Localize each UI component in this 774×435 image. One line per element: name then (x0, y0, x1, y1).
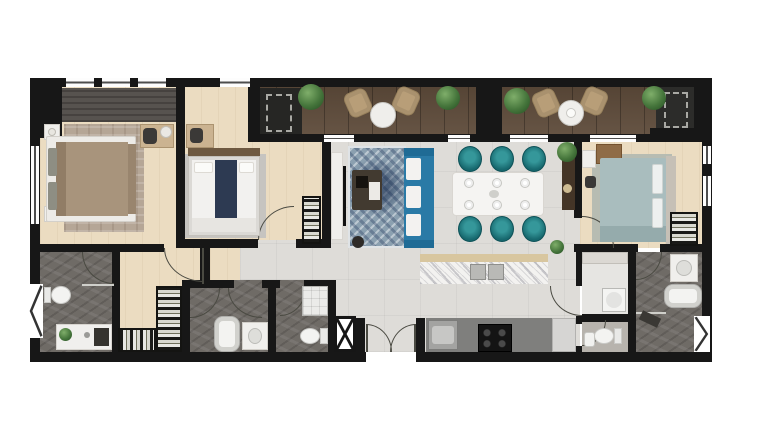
wall-bath1-top (40, 244, 120, 252)
window (510, 135, 548, 142)
island-counter-edge (420, 254, 548, 262)
closet-band (56, 88, 176, 122)
window (703, 176, 711, 206)
pillow (194, 162, 213, 173)
wall-laundry-east (628, 244, 636, 352)
dining-chair (490, 146, 514, 172)
wall-bottom-left (30, 352, 366, 362)
sofa-cushion (406, 158, 421, 180)
window (324, 135, 354, 142)
bathtub (664, 284, 702, 308)
ac-unit-left-coil (266, 94, 292, 132)
tv-console (331, 152, 343, 240)
sink (248, 328, 262, 344)
lamp (160, 126, 172, 138)
plant (642, 86, 666, 110)
wall-entry-post-left (356, 318, 365, 352)
washer-drum (606, 292, 622, 308)
dining-chair (490, 216, 514, 242)
sofa-arm (404, 240, 434, 248)
wardrobe-unit (670, 212, 698, 246)
plate (520, 178, 530, 188)
wall-closet-top (120, 244, 164, 252)
window (220, 78, 250, 87)
wardrobe-unit (156, 286, 182, 352)
sofa-cushion (406, 214, 421, 236)
bed-left-fold (56, 142, 66, 216)
console-decor (563, 184, 572, 193)
desk-chair (143, 128, 157, 144)
window (448, 135, 470, 142)
wall-bath2-west (182, 280, 190, 352)
shaft (334, 316, 356, 352)
toilet-bowl (51, 286, 71, 304)
vanity-tray (94, 328, 109, 346)
pillow (652, 198, 663, 228)
plate (520, 200, 530, 210)
pillow (48, 148, 57, 176)
wardrobe-unit (118, 328, 156, 352)
wall-bed2-living (322, 136, 331, 248)
door-leaf (202, 248, 204, 284)
wall-bed1-bed2 (176, 86, 185, 239)
centerpiece (489, 190, 499, 198)
ac-unit-right-coil (664, 92, 688, 128)
bed-left-duvet (56, 142, 128, 216)
lamp (48, 128, 56, 136)
pillow (239, 162, 254, 173)
sofa-cushion (406, 186, 421, 208)
plate (492, 178, 502, 188)
faucet (84, 332, 90, 338)
bed-left-runner (128, 144, 136, 214)
patio-table (370, 102, 396, 128)
toilet-tank (614, 328, 622, 344)
plant (436, 86, 460, 110)
dining-chair (522, 216, 546, 242)
window (590, 135, 636, 142)
plant (550, 240, 564, 254)
wall-bath2-bath3 (268, 280, 276, 352)
coffee-table-decor (356, 176, 368, 188)
shower-glass (82, 284, 114, 286)
side-table (352, 236, 364, 248)
island-sink (488, 264, 504, 280)
sink (676, 260, 692, 276)
dining-chair (458, 146, 482, 172)
door-leaf (366, 324, 368, 352)
shelf-unit (302, 196, 321, 244)
desk-chair (190, 128, 203, 143)
laundry-shelf (582, 252, 628, 264)
dining-chair (458, 216, 482, 242)
wall-balcony-left-end (248, 86, 260, 138)
cooktop (478, 324, 512, 352)
sofa-arm (404, 148, 434, 156)
toilet-bowl (594, 328, 614, 344)
window (102, 78, 130, 87)
window (138, 78, 166, 87)
plant (504, 88, 530, 114)
plate (464, 200, 474, 210)
pillow (652, 164, 663, 194)
bathtub (214, 316, 240, 352)
wall-laundry-west-c (576, 346, 582, 352)
wall-between-balconies (476, 78, 502, 142)
window (66, 78, 94, 87)
plate (492, 200, 502, 210)
dining-chair (522, 146, 546, 172)
plant (298, 84, 324, 110)
wall-entry-post-right (416, 318, 425, 352)
stool (585, 176, 596, 188)
plant (59, 328, 72, 341)
toilet-tank (320, 328, 328, 344)
kitchen-sink-basin (432, 326, 454, 344)
nightstand (582, 150, 596, 168)
shower-pan (302, 286, 328, 316)
tv (343, 166, 346, 226)
wall-bath-top-a (182, 280, 234, 288)
bay-window-left (28, 284, 43, 338)
pillow (48, 182, 57, 210)
fridge (552, 318, 576, 352)
patio-table-decor (566, 108, 576, 118)
island-sink (470, 264, 486, 280)
sink (584, 332, 595, 347)
toilet-tank (44, 287, 51, 303)
floor-plan (0, 0, 774, 435)
bed-right-fold (600, 226, 666, 242)
wall-bottom-right (416, 352, 712, 362)
wall-ac-right-side (694, 78, 712, 140)
wall-top (30, 78, 712, 87)
door-leaf (414, 324, 416, 352)
plant (557, 142, 577, 162)
toilet-bowl (300, 328, 320, 344)
bay-window-right (694, 316, 710, 352)
wall-balcony-left-bottom (248, 134, 480, 142)
plate (464, 178, 474, 188)
wall-bed2-south-a (176, 239, 258, 248)
coffee-table-tray (369, 182, 380, 200)
bed-mid-fold (192, 218, 256, 232)
window (31, 146, 39, 224)
window (703, 146, 711, 164)
